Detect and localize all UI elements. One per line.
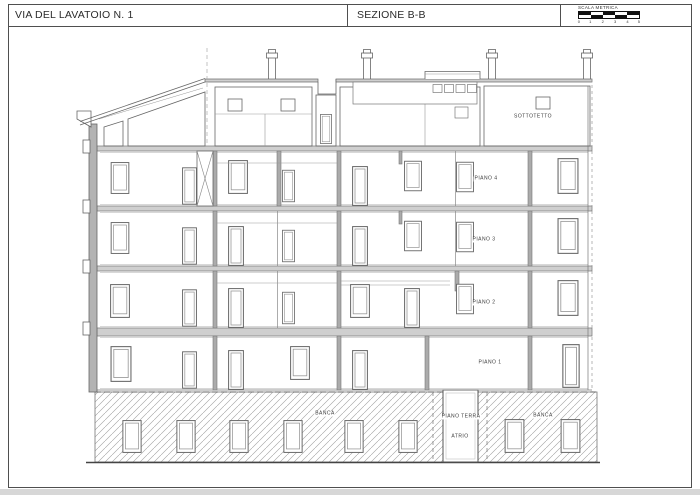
label-banca-right: BANCA <box>532 414 553 419</box>
drawing-title: SEZIONE B-B <box>347 4 570 26</box>
scale-tick-labels: 0 1 2 3 4 5 <box>578 19 640 25</box>
ground-floor-band <box>86 390 600 463</box>
label-sottotetto: SOTTOTETTO <box>513 115 553 120</box>
scale-tick: 5 <box>638 19 640 24</box>
scale-tick: 3 <box>614 19 616 24</box>
scale-tick: 0 <box>578 19 580 24</box>
scale-tick: 2 <box>602 19 604 24</box>
scale-tick: 1 <box>589 19 591 24</box>
section-drawing <box>0 0 700 495</box>
label-piano-2: PIANO 2 <box>472 301 497 306</box>
label-piano-1: PIANO 1 <box>478 361 503 366</box>
page-edge <box>0 489 700 495</box>
piano-4-level <box>100 151 588 206</box>
scale-bar-graphic <box>578 11 640 19</box>
title-block: VIA DEL LAVATOIO N. 1 SEZIONE B-B SCALA … <box>8 4 692 27</box>
label-piano-terra: PIANO TERRA <box>441 415 482 420</box>
label-piano-4: PIANO 4 <box>474 177 499 182</box>
drawing-sheet: SOTTOTETTO PIANO 4 PIANO 3 PIANO 2 PIANO… <box>0 0 700 495</box>
project-title: VIA DEL LAVATOIO N. 1 <box>8 4 354 26</box>
piano-1-level <box>100 336 588 390</box>
label-piano-3: PIANO 3 <box>472 238 497 243</box>
piano-3-level <box>100 211 588 266</box>
scale-tick: 4 <box>626 19 628 24</box>
label-atrio: ATRIO <box>450 435 469 440</box>
piano-2-level <box>100 271 588 328</box>
label-banca-left: BANCA <box>314 412 335 417</box>
left-exterior-wall <box>77 111 97 392</box>
scale-block: SCALA METRICA 0 1 2 3 4 5 <box>560 4 692 26</box>
scale-metric-label: SCALA METRICA <box>578 5 642 10</box>
floor-slabs <box>97 146 592 390</box>
